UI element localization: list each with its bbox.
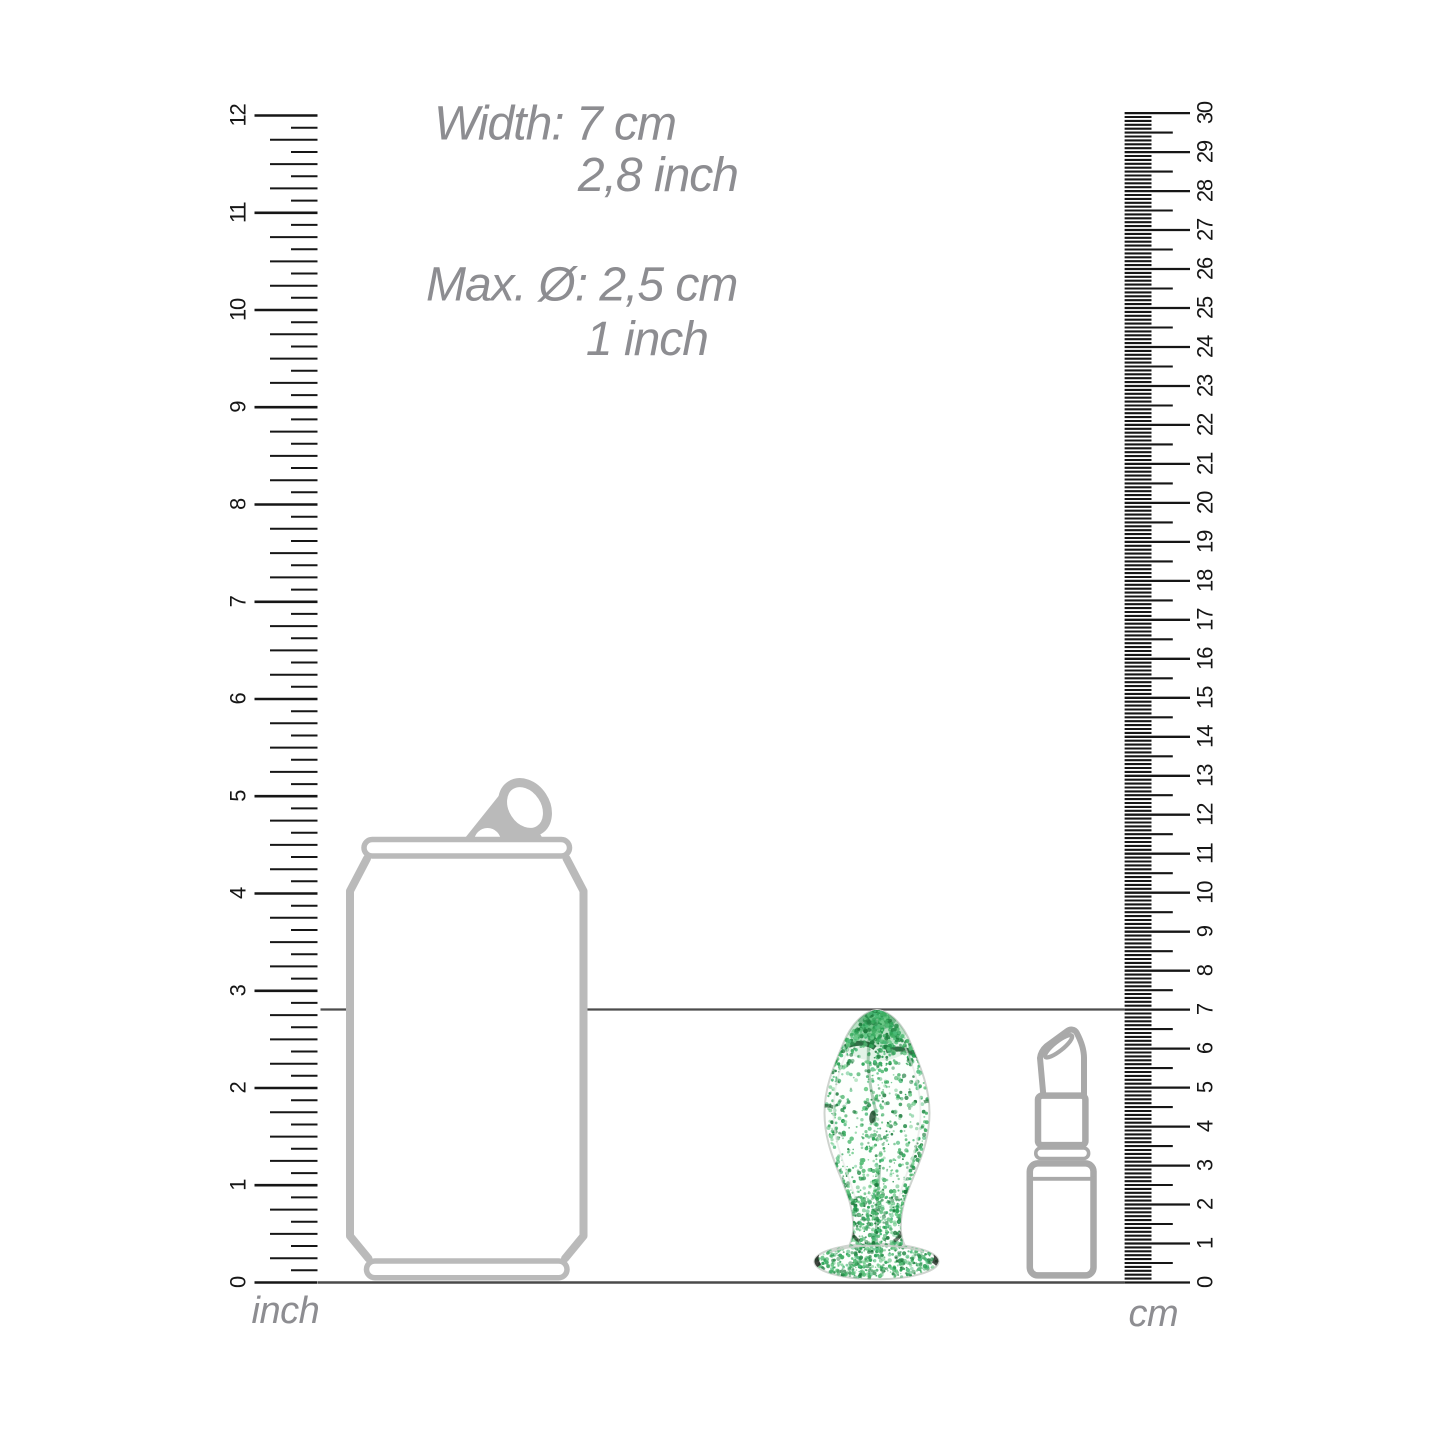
svg-text:18: 18 [1193, 569, 1218, 592]
svg-text:10: 10 [226, 298, 251, 321]
svg-text:2: 2 [226, 1082, 251, 1094]
svg-text:7: 7 [226, 595, 251, 607]
svg-text:28: 28 [1193, 179, 1218, 202]
svg-text:21: 21 [1193, 452, 1218, 475]
svg-text:5: 5 [1193, 1081, 1218, 1093]
svg-text:2,8 inch: 2,8 inch [577, 149, 738, 202]
svg-text:3: 3 [1193, 1159, 1218, 1171]
svg-text:1: 1 [1193, 1237, 1218, 1249]
svg-text:16: 16 [1193, 647, 1218, 670]
svg-text:0: 0 [1193, 1276, 1218, 1288]
svg-text:8: 8 [1193, 964, 1218, 976]
svg-text:inch: inch [252, 1290, 320, 1332]
svg-text:9: 9 [1193, 925, 1218, 937]
svg-text:12: 12 [1193, 803, 1218, 826]
svg-text:25: 25 [1193, 296, 1218, 319]
svg-text:29: 29 [1193, 140, 1218, 163]
svg-text:10: 10 [1193, 881, 1218, 904]
svg-text:2: 2 [1193, 1198, 1218, 1210]
svg-text:4: 4 [1193, 1120, 1218, 1132]
svg-text:cm: cm [1129, 1293, 1179, 1335]
svg-text:24: 24 [1193, 335, 1218, 358]
svg-text:Max. Ø: 2,5 cm: Max. Ø: 2,5 cm [426, 259, 737, 312]
svg-text:0: 0 [226, 1276, 251, 1288]
svg-text:9: 9 [226, 401, 251, 413]
svg-text:3: 3 [226, 984, 251, 996]
svg-text:5: 5 [226, 790, 251, 802]
svg-text:6: 6 [1193, 1042, 1218, 1054]
svg-text:17: 17 [1193, 608, 1218, 631]
svg-text:13: 13 [1193, 764, 1218, 787]
svg-text:15: 15 [1193, 686, 1218, 709]
svg-text:19: 19 [1193, 530, 1218, 553]
svg-text:1 inch: 1 inch [586, 313, 708, 366]
svg-text:20: 20 [1193, 491, 1218, 514]
svg-text:Width: 7 cm: Width: 7 cm [434, 98, 676, 151]
svg-text:27: 27 [1193, 218, 1218, 241]
svg-text:11: 11 [1193, 843, 1218, 864]
svg-text:23: 23 [1193, 374, 1218, 397]
svg-text:8: 8 [226, 498, 251, 510]
svg-text:7: 7 [1193, 1003, 1218, 1015]
svg-text:22: 22 [1193, 413, 1218, 436]
svg-text:4: 4 [226, 887, 251, 899]
svg-text:1: 1 [226, 1179, 251, 1191]
svg-text:6: 6 [226, 693, 251, 705]
svg-text:14: 14 [1193, 725, 1218, 748]
svg-text:12: 12 [226, 104, 251, 127]
svg-text:26: 26 [1193, 257, 1218, 280]
svg-text:30: 30 [1193, 101, 1218, 124]
svg-text:11: 11 [226, 202, 251, 223]
